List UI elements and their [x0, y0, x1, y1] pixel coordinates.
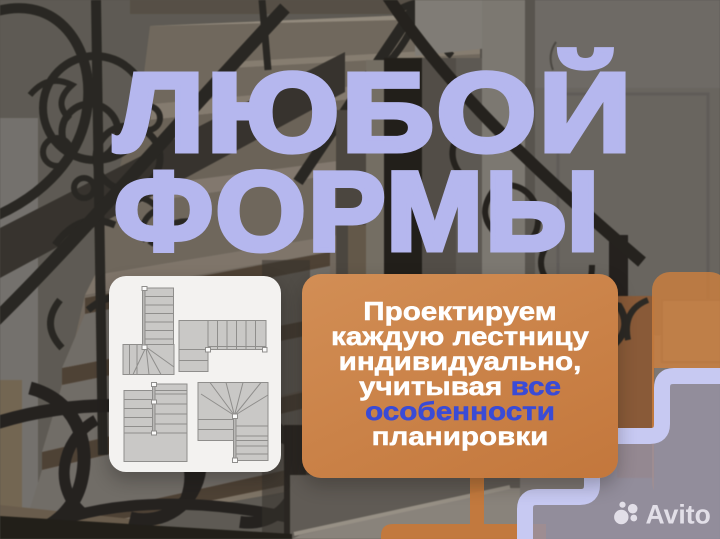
svg-text:Avito: Avito	[646, 500, 711, 530]
